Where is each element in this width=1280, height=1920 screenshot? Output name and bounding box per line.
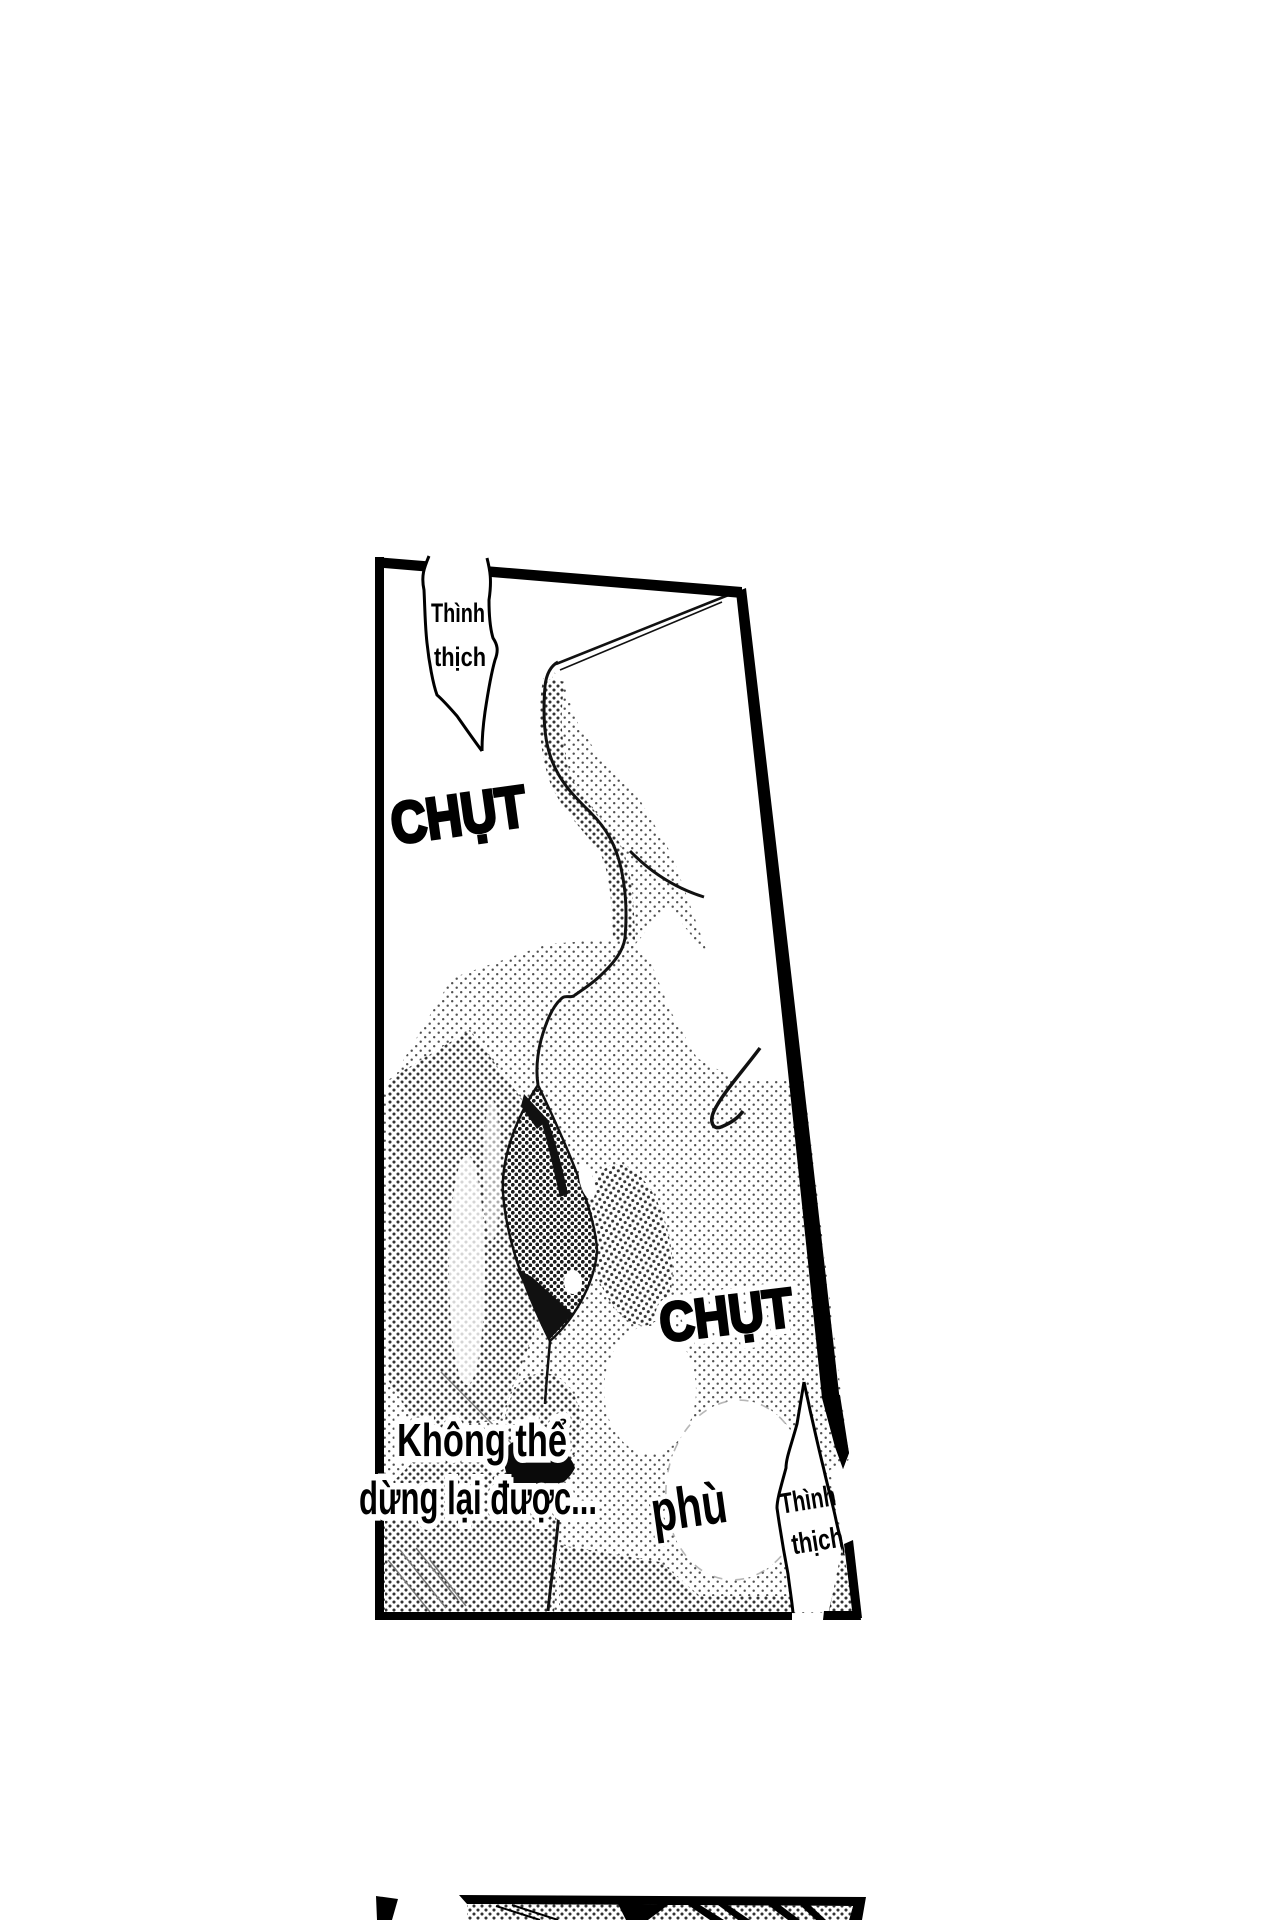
svg-text:Thình: Thình — [431, 598, 485, 628]
svg-text:thịch: thịch — [434, 642, 486, 672]
svg-text:dừng lại được...: dừng lại được... — [359, 1472, 597, 1524]
svg-text:phù: phù — [647, 1470, 731, 1545]
svg-text:Không thể: Không thể — [397, 1414, 567, 1466]
